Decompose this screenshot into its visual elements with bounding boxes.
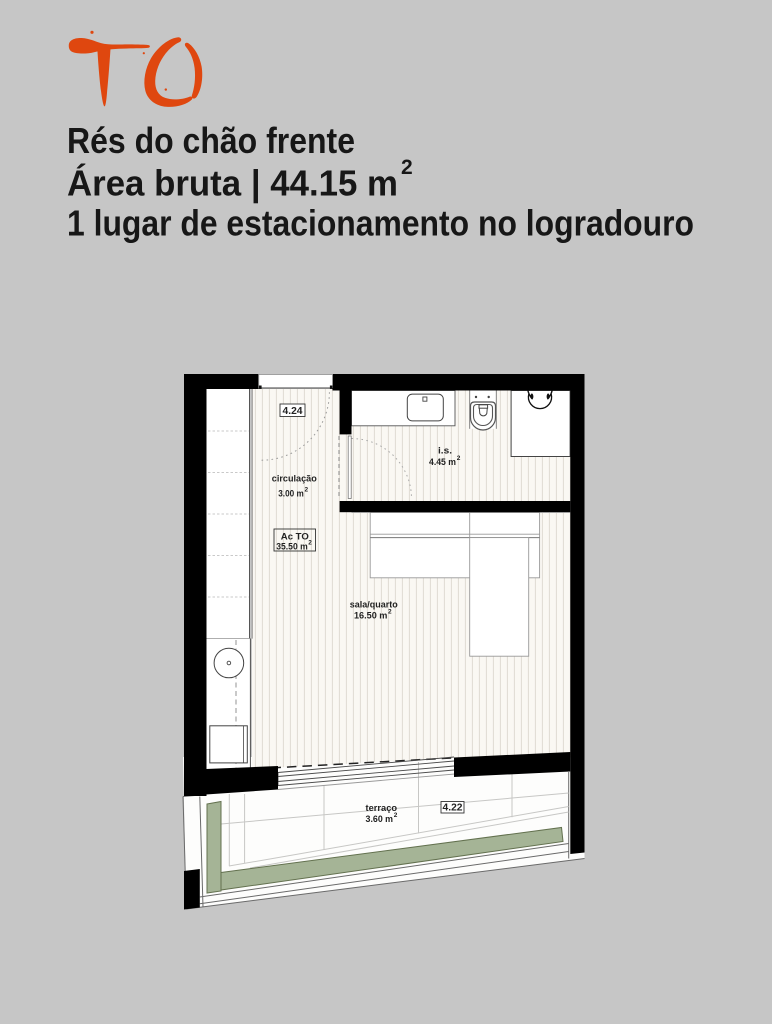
svg-text:2: 2 [308,540,312,547]
svg-text:Ac TO: Ac TO [281,532,309,542]
svg-text:Rés do chão frente: Rés do chão frente [67,120,355,161]
svg-text:2: 2 [457,455,461,462]
svg-text:35.50 m: 35.50 m [276,542,308,552]
svg-text:16.50 m: 16.50 m [354,611,388,621]
svg-text:terraço: terraço [366,803,398,813]
svg-text:4.45 m: 4.45 m [429,457,456,467]
svg-text:2: 2 [388,609,392,616]
svg-text:4.22: 4.22 [443,803,463,814]
svg-text:2: 2 [305,487,309,494]
svg-text:4.24: 4.24 [283,406,303,417]
svg-text:2: 2 [394,812,398,819]
svg-text:Área bruta | 44.15 m: Área bruta | 44.15 m [67,163,398,205]
svg-text:2: 2 [401,156,413,179]
svg-text:3.60 m: 3.60 m [366,814,394,824]
svg-text:circulação: circulação [272,473,317,483]
svg-text:3.00 m: 3.00 m [278,489,304,499]
svg-text:i.s.: i.s. [438,446,452,456]
svg-text:1 lugar de estacionamento no l: 1 lugar de estacionamento no logradouro [67,203,694,244]
